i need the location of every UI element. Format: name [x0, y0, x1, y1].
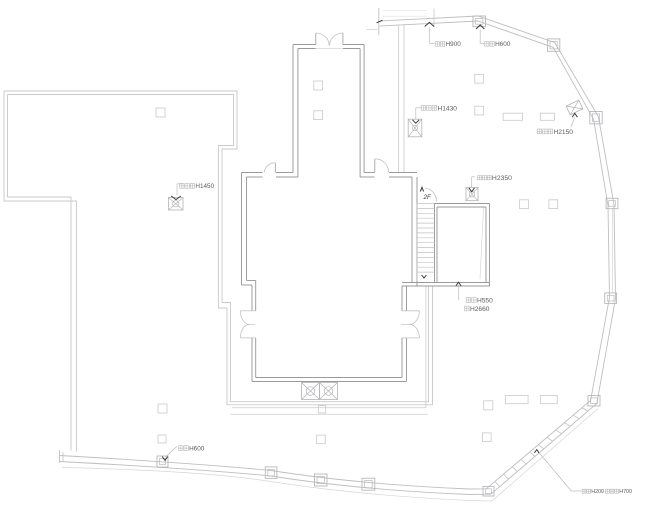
- svg-text:2F: 2F: [423, 194, 432, 201]
- svg-text:H700: H700: [619, 489, 632, 495]
- svg-text:H1430: H1430: [437, 105, 457, 112]
- svg-text:H600: H600: [495, 41, 511, 48]
- svg-text:H2660: H2660: [470, 306, 490, 313]
- svg-text:H2150: H2150: [553, 129, 573, 136]
- svg-text:H550: H550: [477, 297, 493, 304]
- svg-text:H200: H200: [591, 489, 604, 495]
- svg-text:H1450: H1450: [195, 183, 214, 190]
- svg-text:H2350: H2350: [492, 175, 512, 182]
- svg-text:H900: H900: [446, 41, 462, 48]
- svg-text:H600: H600: [189, 445, 205, 452]
